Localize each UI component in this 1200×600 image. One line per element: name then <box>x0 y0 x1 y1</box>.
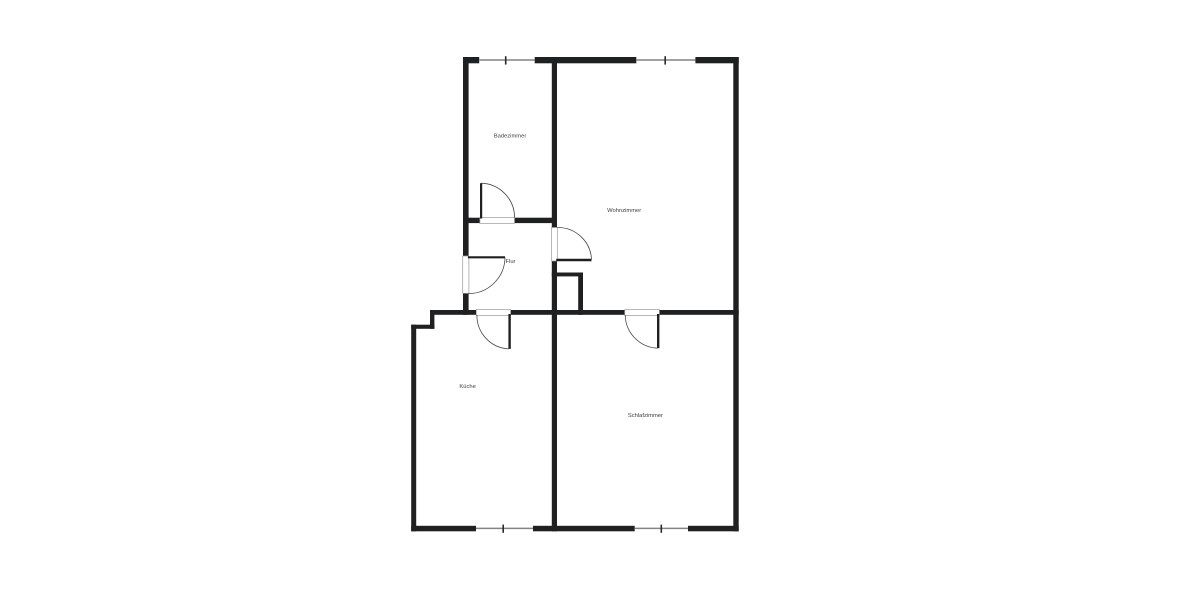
svg-text:Schlafzimmer: Schlafzimmer <box>628 413 663 419</box>
svg-text:Badezimmer: Badezimmer <box>494 134 527 140</box>
svg-text:Küche: Küche <box>459 384 475 390</box>
svg-text:Wohnzimmer: Wohnzimmer <box>607 208 641 214</box>
svg-text:Flur: Flur <box>506 259 516 265</box>
